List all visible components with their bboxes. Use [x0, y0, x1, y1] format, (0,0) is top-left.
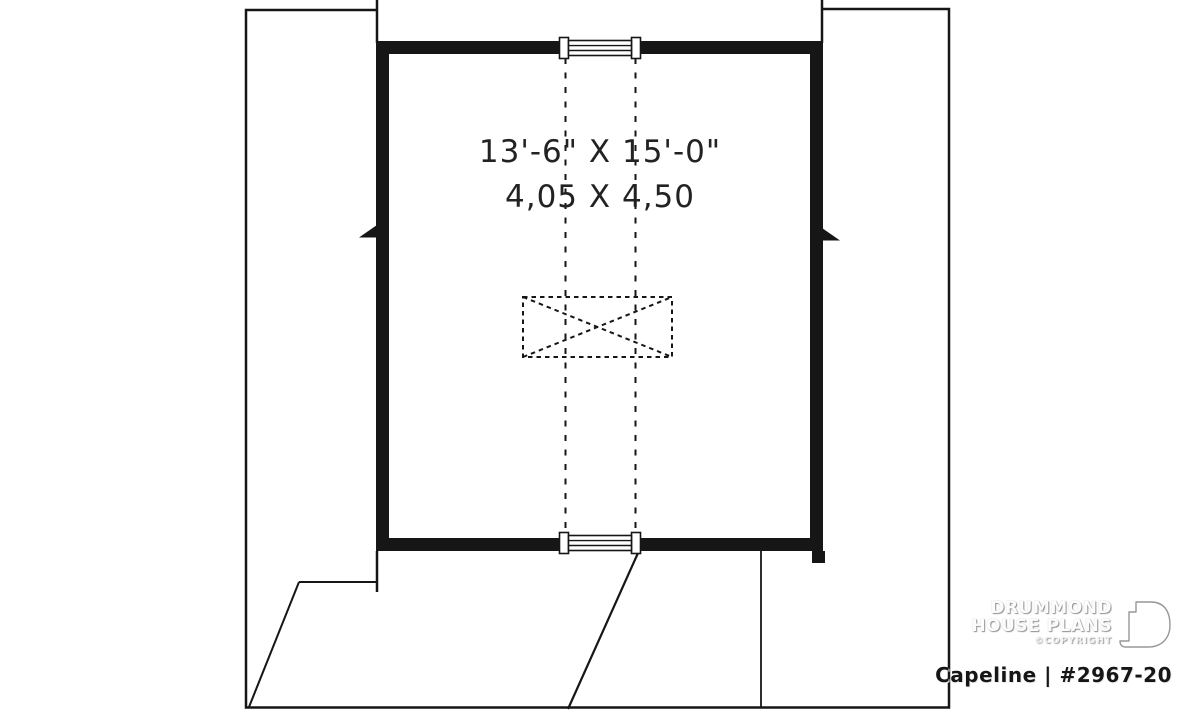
plan-number: #2967-20 [1059, 663, 1172, 687]
room-dimension-metric: 4,05 X 4,50 [505, 179, 695, 215]
brand-name-line1: DRUMMOND [971, 599, 1112, 617]
gable-window-top [560, 38, 641, 59]
drummond-branding: DRUMMOND HOUSE PLANS ©COPYRIGHT Capeline… [935, 599, 1172, 687]
slope-arrow-right-icon [822, 228, 840, 241]
copyright-label: ©COPYRIGHT [971, 636, 1112, 647]
gable-window-bottom [560, 533, 641, 554]
room-dimension-imperial: 13'-6" X 15'-0" [479, 134, 721, 170]
roof-valley-lines [249, 551, 819, 709]
plan-title: Capeline | #2967-20 [935, 663, 1172, 687]
plan-title-separator: | [1044, 663, 1052, 687]
drummond-logo-icon [1118, 597, 1172, 651]
brand-name-line2: HOUSE PLANS [971, 617, 1112, 635]
slope-arrow-left-icon [359, 225, 377, 238]
floor-plan-canvas: 13'-6" X 15'-0" 4,05 X 4,50 DRUMMOND HOU… [0, 0, 1200, 711]
plan-name: Capeline [935, 663, 1037, 687]
